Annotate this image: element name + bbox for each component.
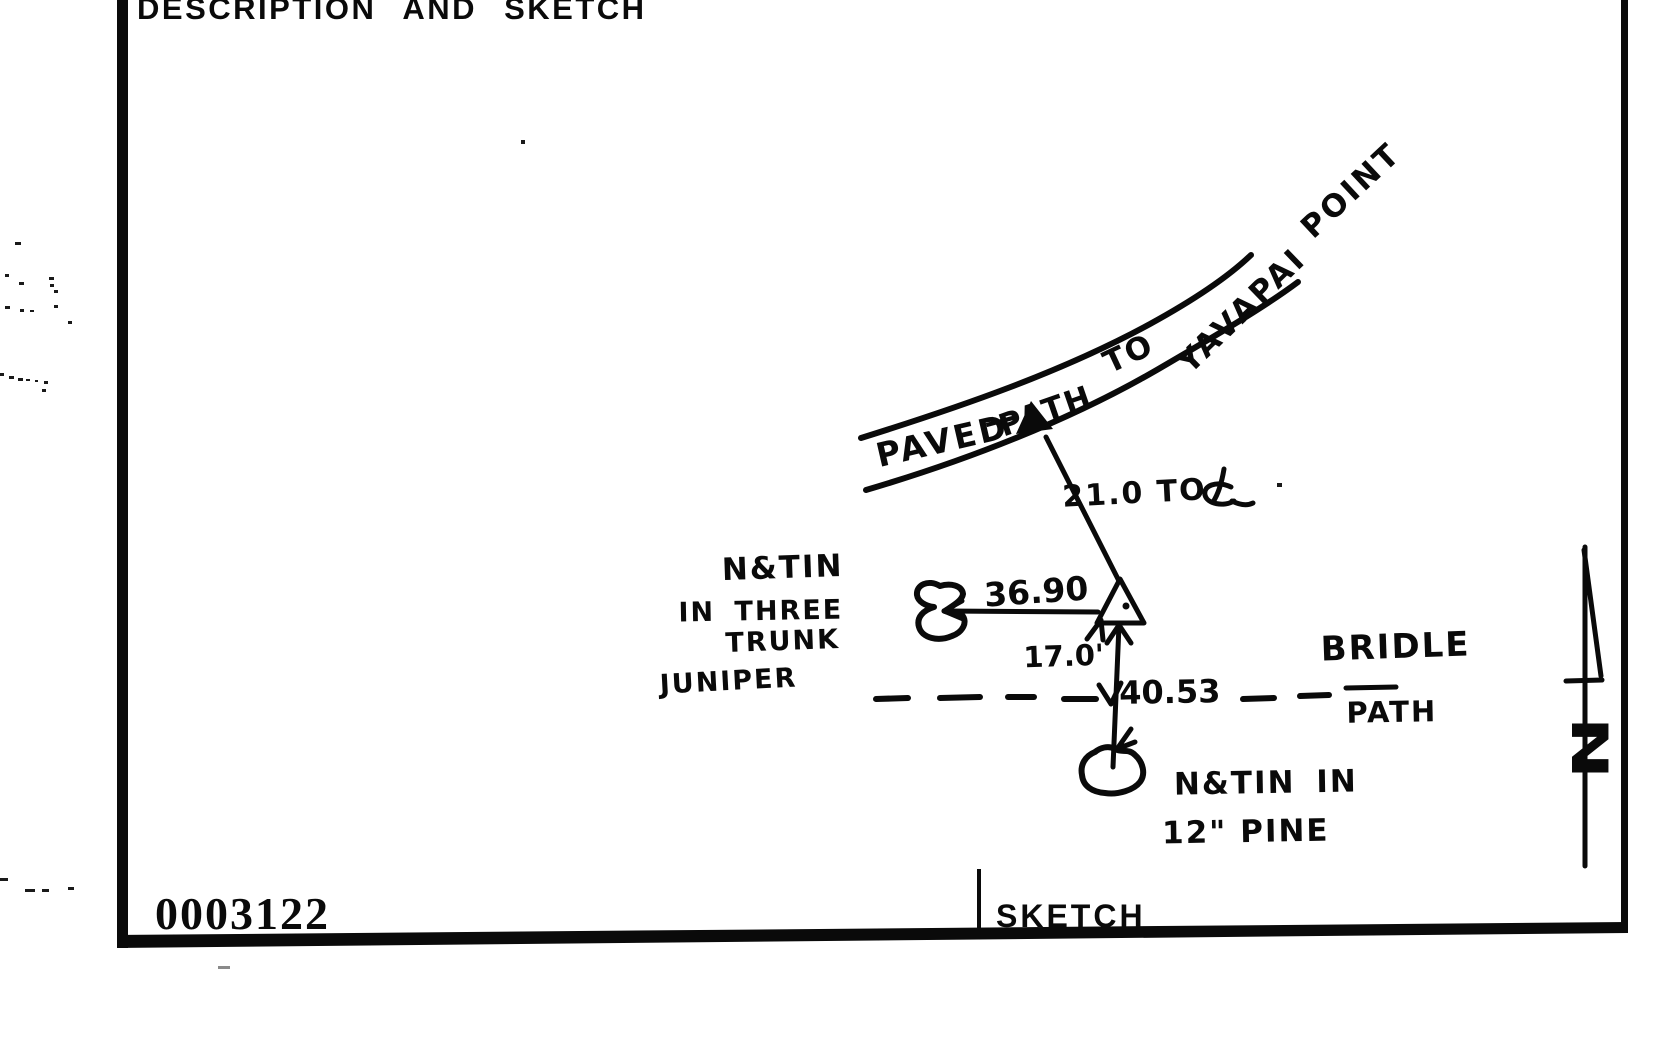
centerline-dimension: 21.0 TO	[1016, 401, 1253, 581]
scan-speck	[9, 376, 14, 379]
scan-speck	[521, 140, 525, 144]
juniper-label: N&TIN IN THREE TRUNK JUNIPER	[657, 548, 844, 701]
form-header-title: DESCRIPTION AND SKETCH	[137, 0, 647, 26]
centerline-icon-tail	[1232, 501, 1253, 505]
bridle-offset-label: 17.0'	[1023, 638, 1105, 675]
frame-right-border	[1621, 0, 1628, 929]
scan-speck	[19, 282, 24, 285]
scanned-survey-document: DESCRIPTION AND SKETCH SKETCH 0003122 PA…	[0, 0, 1680, 1040]
bridle-path-word: PATH	[1346, 694, 1437, 730]
station-center-dot	[1123, 603, 1130, 610]
frame-bottom-border	[117, 922, 1628, 948]
station-triangle-outline	[1097, 579, 1144, 623]
frame-left-border	[117, 0, 128, 948]
bridle-dash	[1300, 695, 1329, 696]
pine-label-line2: 12" PINE	[1162, 813, 1330, 852]
scan-speck	[26, 379, 30, 381]
scan-speck	[30, 310, 34, 312]
pine-arrowhead-icon	[1117, 729, 1135, 749]
footer-sketch-label: SKETCH	[996, 898, 1146, 934]
station-triangle-icon	[1097, 579, 1144, 623]
scan-speck	[50, 284, 54, 287]
juniper-tree-icon	[917, 583, 965, 639]
scan-speck	[42, 389, 46, 392]
juniper-label-line4: JUNIPER	[657, 662, 798, 700]
juniper-distance-label: 36.90	[983, 568, 1090, 614]
document-canvas: DESCRIPTION AND SKETCH SKETCH 0003122 PA…	[0, 0, 1680, 1040]
footer-divider-line	[977, 869, 981, 933]
scan-speck	[54, 290, 58, 293]
scan-speck	[42, 889, 49, 892]
bridle-dash	[876, 698, 908, 699]
bridle-dash	[940, 697, 980, 698]
scan-speck	[44, 381, 48, 384]
form-frame	[117, 0, 1628, 948]
juniper-label-line2: IN THREE	[678, 595, 843, 629]
scan-speck	[5, 306, 10, 309]
scan-speck	[68, 321, 72, 324]
bridle-dash	[1243, 698, 1274, 699]
bridle-dash	[1346, 687, 1396, 688]
scan-speck	[20, 309, 24, 312]
scan-speck	[35, 380, 38, 382]
pine-label-line1: N&TIN IN	[1174, 763, 1358, 802]
scan-speck	[0, 878, 8, 881]
scan-speck	[0, 373, 4, 376]
north-letter: N	[1559, 717, 1617, 780]
juniper-label-line3: TRUNK	[725, 624, 841, 659]
pine-label: N&TIN IN 12" PINE	[1162, 763, 1358, 851]
pine-distance-label: 40.53	[1119, 672, 1221, 712]
scan-speck	[5, 274, 9, 277]
scan-speck	[18, 378, 23, 381]
pine-dimension: 17.0' 40.53	[1023, 620, 1221, 767]
juniper-dimension: 36.90	[944, 568, 1098, 619]
scan-speck	[25, 889, 35, 892]
scan-speck	[15, 242, 21, 245]
north-arrow-flag-base	[1566, 680, 1602, 681]
juniper-label-line1: N&TIN	[721, 548, 844, 588]
centerline-distance-label: 21.0 TO	[1061, 472, 1207, 515]
scan-speck	[54, 305, 58, 308]
scan-speck	[68, 887, 74, 890]
centerline-icon	[1205, 469, 1253, 505]
north-arrow: N	[1559, 547, 1617, 866]
scan-noise	[0, 140, 1282, 969]
scan-speck	[1277, 483, 1282, 487]
stamped-serial-number: 0003122	[155, 888, 330, 939]
bridle-label: BRIDLE	[1320, 624, 1471, 669]
scan-speck	[49, 277, 54, 280]
bridle-path-label: BRIDLE PATH	[1320, 624, 1471, 729]
path-label-point: POINT	[1294, 136, 1408, 246]
paved-path-label: PAVED — PATH TO YAVAPAI POINT	[872, 136, 1408, 475]
scan-speck	[218, 966, 230, 969]
